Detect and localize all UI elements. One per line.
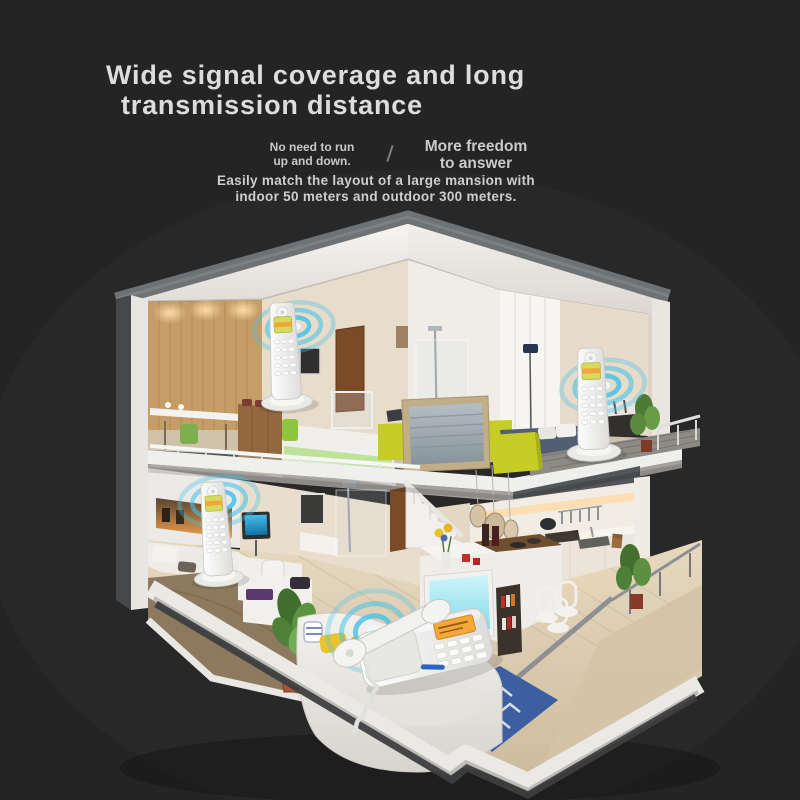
left-wall-edge bbox=[116, 295, 148, 610]
marketing-banner: Wide signal coverage and long transmissi… bbox=[0, 0, 800, 800]
wine-bottle bbox=[492, 526, 499, 546]
bathroom-mirror bbox=[300, 494, 324, 524]
kettle bbox=[540, 518, 556, 530]
wine-bottle bbox=[482, 524, 489, 546]
upper-tv bbox=[402, 396, 490, 472]
floor-lamp bbox=[530, 352, 531, 430]
bookshelf bbox=[496, 584, 522, 656]
house-cutaway-illustration bbox=[0, 0, 800, 800]
yellow-ottoman bbox=[490, 432, 539, 474]
green-chair bbox=[180, 424, 198, 444]
